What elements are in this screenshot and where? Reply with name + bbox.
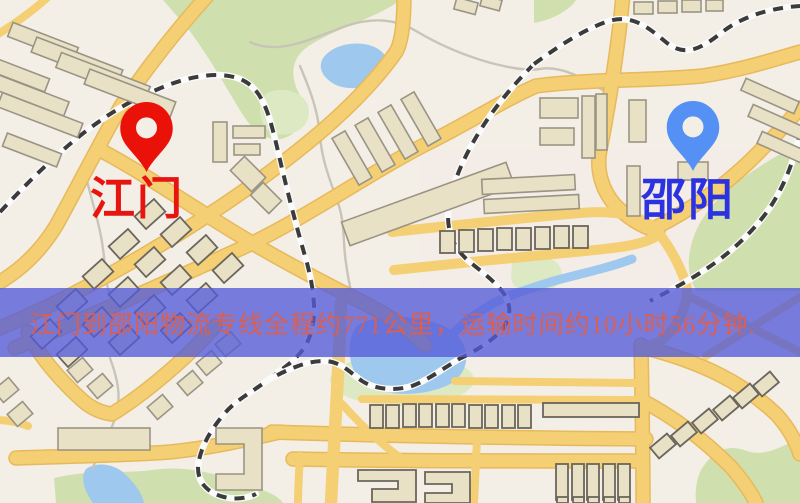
origin-pin-icon[interactable] [120, 102, 173, 172]
destination-label: 邵阳 [641, 178, 735, 223]
origin-label: 江门 [90, 177, 184, 222]
destination-pin-icon[interactable] [664, 101, 722, 171]
map-canvas[interactable] [0, 0, 800, 503]
map-container[interactable]: 江门 邵阳 江门到邵阳物流专线全程约771公里，运输时间约10小时56分钟. [0, 0, 800, 503]
route-banner-text: 江门到邵阳物流专线全程约771公里，运输时间约10小时56分钟. [0, 305, 756, 341]
route-banner: 江门到邵阳物流专线全程约771公里，运输时间约10小时56分钟. [0, 288, 800, 357]
